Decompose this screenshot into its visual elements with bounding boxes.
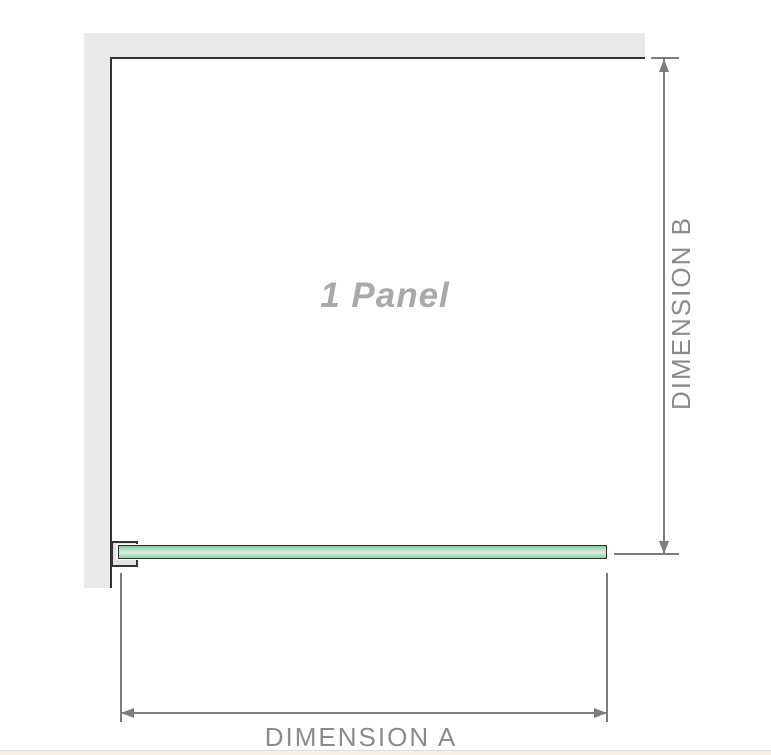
panel-count-label: 1 Panel xyxy=(285,276,485,316)
wall-left xyxy=(84,33,110,588)
shower-panel-dimension-diagram: 1 Panel DIMENSION B DIMENSION A xyxy=(0,0,771,755)
dimension-a-extension-right xyxy=(606,573,608,722)
dimension-a-extension-left xyxy=(120,573,122,722)
arrow-up-icon xyxy=(659,59,669,72)
arrow-right-icon xyxy=(594,708,607,718)
dimension-a-label: DIMENSION A xyxy=(261,722,461,752)
arrow-down-icon xyxy=(659,541,669,554)
wall-inner-edge-top xyxy=(110,57,645,59)
dimension-a-line xyxy=(121,712,607,714)
glass-panel xyxy=(118,545,607,559)
dimension-b-line xyxy=(663,59,665,554)
image-bottom-edge xyxy=(0,750,771,755)
dimension-b-label: DIMENSION B xyxy=(666,213,696,413)
wall-inner-edge-left xyxy=(110,57,112,588)
arrow-left-icon xyxy=(121,708,134,718)
wall-top xyxy=(84,33,645,57)
dimension-b-tick-bottom xyxy=(614,553,679,555)
